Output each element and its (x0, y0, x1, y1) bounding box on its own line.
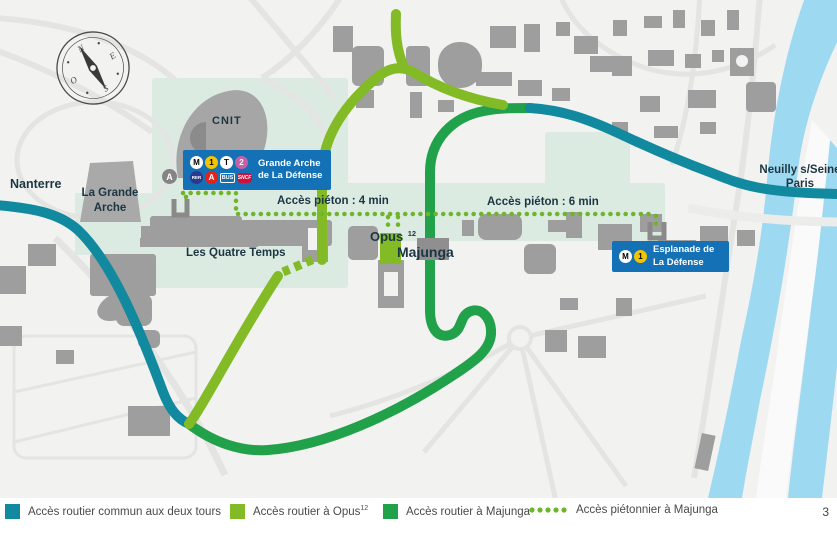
label-pieton-4min: Accès piéton : 4 min (277, 195, 389, 207)
label-neuilly-line1: Neuilly s/Seine (759, 164, 837, 176)
metro-icon: M (190, 156, 203, 169)
badge-esplanade-station: M 1 Esplanade de La Défense (612, 241, 729, 272)
legend-label-common: Accès routier commun aux deux tours (28, 506, 221, 518)
rer-icon: RER (190, 171, 203, 184)
circled-a-icon: A (162, 169, 177, 184)
bus-icon: BUS (220, 173, 235, 183)
sncf-icon: SNCF (237, 173, 252, 183)
legend-swatch-common (5, 504, 20, 519)
page-number: 3 (822, 505, 829, 519)
legend-label-pedestrian: Accès piétonnier à Majunga (576, 504, 718, 516)
legend-swatch-opus (230, 504, 245, 519)
metro-line1-icon: 1 (634, 250, 647, 263)
legend-label-majunga: Accès routier à Majunga (406, 506, 530, 518)
label-pieton-6min: Accès piéton : 6 min (487, 196, 599, 208)
legend-label-opus: Accès routier à Opus12 (253, 505, 368, 518)
badge-grande-arche-line1: Grande Arche (258, 158, 322, 170)
label-nanterre: Nanterre (10, 177, 61, 191)
tram-icon: T (220, 156, 233, 169)
transit-icons: M 1 T 2 RER A BUS SNCF (190, 156, 252, 184)
badge-grande-arche-line2: de La Défense (258, 170, 322, 182)
label-cnit: CNIT (212, 115, 242, 127)
badge-grande-arche-station: M 1 T 2 RER A BUS SNCF Grande Arche de L… (183, 150, 331, 190)
access-map-page: N E S O Nanterre La Grande Arche CNIT Le… (0, 0, 837, 534)
badge-esplanade-line1: Esplanade de (653, 244, 714, 256)
label-grande-arche-line2: Arche (94, 202, 127, 214)
metro-icon: M (619, 250, 632, 263)
rer-a-icon: A (205, 171, 218, 184)
legend-item-majunga: Accès routier à Majunga (383, 504, 530, 519)
badge-esplanade-line2: La Défense (653, 257, 714, 269)
label-neuilly-line2: Paris (786, 178, 814, 190)
legend-swatch-majunga (383, 504, 398, 519)
tram-line2-icon: 2 (235, 156, 248, 169)
label-quatre-temps: Les Quatre Temps (186, 247, 286, 259)
label-grande-arche-line1: La Grande (82, 187, 139, 199)
metro-line1-icon: 1 (205, 156, 218, 169)
legend-item-opus: Accès routier à Opus12 (230, 504, 368, 519)
legend-swatch-pedestrian-dots (528, 506, 568, 514)
label-majunga: Majunga (397, 244, 454, 260)
legend-item-pedestrian: Accès piétonnier à Majunga (528, 504, 718, 516)
legend-item-common: Accès routier commun aux deux tours (5, 504, 221, 519)
